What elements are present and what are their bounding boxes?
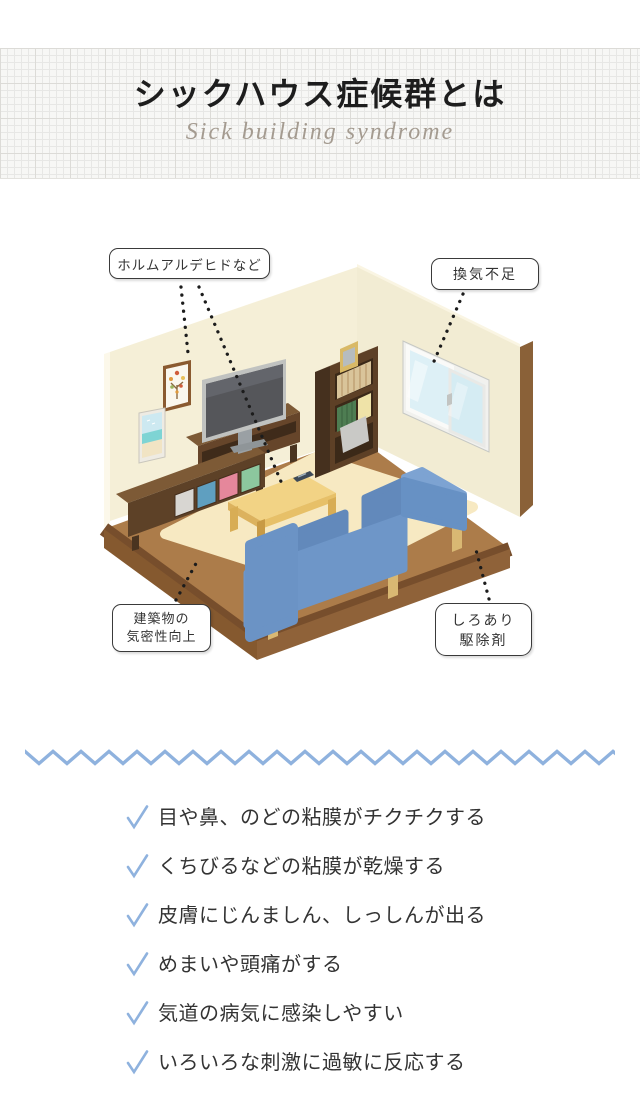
callout-label-line2: 気密性向上 (113, 628, 210, 646)
symptom-item: めまいや頭痛がする (0, 938, 640, 987)
symptom-item: 皮膚にじんましん、しっしんが出る (0, 889, 640, 938)
callout-termite: しろあり 駆除剤 (435, 603, 532, 656)
callout-label-line1: しろあり (436, 610, 531, 630)
symptom-text: くちびるなどの粘膜が乾燥する (158, 850, 445, 879)
callout-label: ホルムアルデヒドなど (110, 254, 269, 274)
picture-frame-beach (139, 408, 165, 463)
sofa-arm-left (250, 528, 293, 637)
checkmark-icon (124, 1049, 151, 1076)
bookshelf-side (315, 366, 330, 478)
symptom-item: 気道の病気に感染しやすい (0, 987, 640, 1036)
callout-label: 換気不足 (432, 264, 538, 284)
sideboard-leg (132, 535, 139, 551)
symptom-item: 目や鼻、のどの粘膜がチクチクする (0, 791, 640, 840)
symptom-text: 気道の病気に感染しやすい (158, 997, 404, 1026)
left-wall-side-edge (104, 352, 110, 527)
symptom-text: めまいや頭痛がする (158, 948, 343, 977)
zigzag-divider (25, 746, 615, 768)
symptom-list: 目や鼻、のどの粘膜がチクチクする くちびるなどの粘膜が乾燥する 皮膚にじんましん… (0, 791, 640, 1085)
tv-board-leg (290, 444, 297, 463)
checkmark-icon (124, 902, 151, 929)
infographic-page: シックハウス症候群とは Sick building syndrome (0, 0, 640, 1109)
table-leg (230, 506, 238, 532)
callout-formaldehyde: ホルムアルデヒドなど (109, 248, 270, 279)
symptom-item: いろいろな刺激に過敏に反応する (0, 1036, 640, 1085)
window-handle (447, 393, 452, 406)
right-wall-slab-edge (520, 341, 533, 517)
callout-airtightness: 建築物の 気密性向上 (112, 604, 211, 652)
callout-ventilation: 換気不足 (431, 258, 539, 290)
picture-frame-tree (163, 360, 191, 412)
checkmark-icon (124, 1000, 151, 1027)
symptom-text: 目や鼻、のどの粘膜がチクチクする (158, 801, 486, 830)
checkmark-icon (124, 853, 151, 880)
symptom-item: くちびるなどの粘膜が乾燥する (0, 840, 640, 889)
checkmark-icon (124, 951, 151, 978)
symptom-text: 皮膚にじんましん、しっしんが出る (158, 899, 486, 928)
callout-label-line2: 駆除剤 (436, 630, 531, 650)
symptom-text: いろいろな刺激に過敏に反応する (158, 1046, 466, 1075)
callout-label-line1: 建築物の (113, 610, 210, 628)
checkmark-icon (124, 804, 151, 831)
